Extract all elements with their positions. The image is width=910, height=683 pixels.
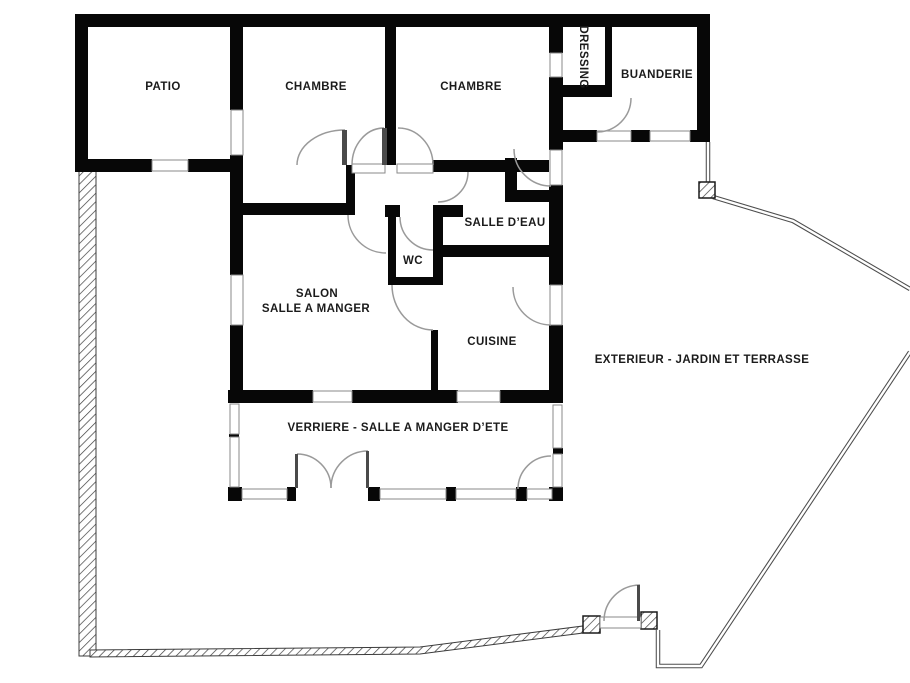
- door-arc-verriere-east: [518, 456, 551, 489]
- window-salon-south: [313, 391, 352, 402]
- wall-patio-left: [75, 14, 88, 172]
- door-arc-verriere-double-right: [331, 451, 368, 488]
- gate-sill: [600, 617, 641, 628]
- wall-wc-bottom: [388, 277, 438, 285]
- opening-dressing-door: [550, 53, 562, 77]
- window-verriere-east-2: [553, 454, 562, 487]
- label-exterieur: EXTERIEUR - JARDIN ET TERRASSE: [595, 354, 810, 366]
- door-arc-salledeau: [438, 172, 468, 202]
- fence-line-southeast: [658, 352, 910, 666]
- door-leaf-verriere-right: [366, 451, 369, 488]
- door-arc-chambre2: [398, 128, 433, 165]
- sill-chambre1-door: [352, 164, 385, 173]
- door-arc-wc: [400, 217, 433, 250]
- sill-chambre2-door: [397, 164, 433, 173]
- gate-pillar-right: [641, 612, 657, 629]
- label-patio: PATIO: [145, 81, 180, 93]
- gate-door-arc: [604, 585, 640, 621]
- floor-plan-drawing: PATIO CHAMBRE CHAMBRE DRESSING BUANDERIE…: [0, 0, 910, 683]
- door-leaf-verriere-left: [295, 454, 298, 488]
- gate-door-leaf: [637, 585, 640, 621]
- label-salon-line1: SALON: [296, 288, 338, 300]
- label-chambre-2: CHAMBRE: [440, 81, 502, 93]
- label-salle-deau: SALLE D’EAU: [464, 217, 545, 229]
- wall-dressing-buanderie: [605, 27, 612, 97]
- label-dressing: DRESSING: [577, 25, 589, 88]
- wall-buanderie-right: [697, 14, 710, 142]
- window-cuisine-south: [457, 391, 500, 402]
- label-buanderie: BUANDERIE: [621, 69, 693, 81]
- window-buanderie-south-2: [650, 131, 690, 141]
- wall-salon-top: [235, 203, 347, 215]
- gate-pillar-left: [583, 616, 600, 633]
- window-verriere-west-2: [230, 437, 239, 487]
- wall-salon-cuisine: [431, 330, 438, 391]
- door-arc-chambre1: [297, 130, 345, 165]
- door-arc-buanderie: [597, 98, 631, 132]
- wall-patio-bottom-left: [75, 159, 152, 172]
- window-verriere-west-1: [230, 404, 239, 434]
- door-leaf-chambre1-b: [382, 128, 387, 165]
- label-verriere: VERRIERE - SALLE A MANGER D’ETE: [287, 422, 508, 434]
- wall-chambre2-bottom: [432, 160, 549, 172]
- window-verriere-east-1: [553, 405, 562, 448]
- door-leaf-chambre1: [342, 130, 347, 165]
- door-arc-cuisine-french: [513, 287, 551, 325]
- floor-plan-canvas: PATIO CHAMBRE CHAMBRE DRESSING BUANDERIE…: [0, 0, 910, 683]
- label-cuisine: CUISINE: [467, 336, 516, 348]
- window-salon-west: [231, 275, 243, 325]
- window-buanderie-south-1: [597, 131, 631, 141]
- window-verriere-south-3: [456, 489, 516, 499]
- door-arc-salon-hall: [348, 215, 386, 253]
- door-arc-verriere-double-left: [297, 454, 331, 488]
- sill-patio-opening: [152, 160, 188, 171]
- door-arc-chambre1-b: [352, 128, 384, 165]
- fence-pillar-north: [699, 182, 715, 198]
- door-arc-salon-cuisine: [392, 285, 433, 330]
- wall-salledeau-bottom: [433, 245, 563, 257]
- label-salon-line2: SALLE A MANGER: [262, 303, 371, 315]
- window-verriere-south-2: [380, 489, 446, 499]
- boundary-hatch-left: [79, 163, 96, 656]
- window-verriere-south-1: [242, 489, 287, 499]
- window-patio-east: [231, 110, 243, 155]
- sill-verriere-door-right: [527, 489, 552, 499]
- label-wc: WC: [403, 255, 423, 267]
- opening-hall-east-door: [550, 150, 562, 185]
- boundary-hatch-bottom: [90, 626, 583, 657]
- window-cuisine-east: [550, 285, 562, 325]
- wall-top: [75, 14, 710, 27]
- wall-wc-left: [388, 205, 396, 285]
- fence-line-northeast: [713, 197, 910, 289]
- label-chambre-1: CHAMBRE: [285, 81, 347, 93]
